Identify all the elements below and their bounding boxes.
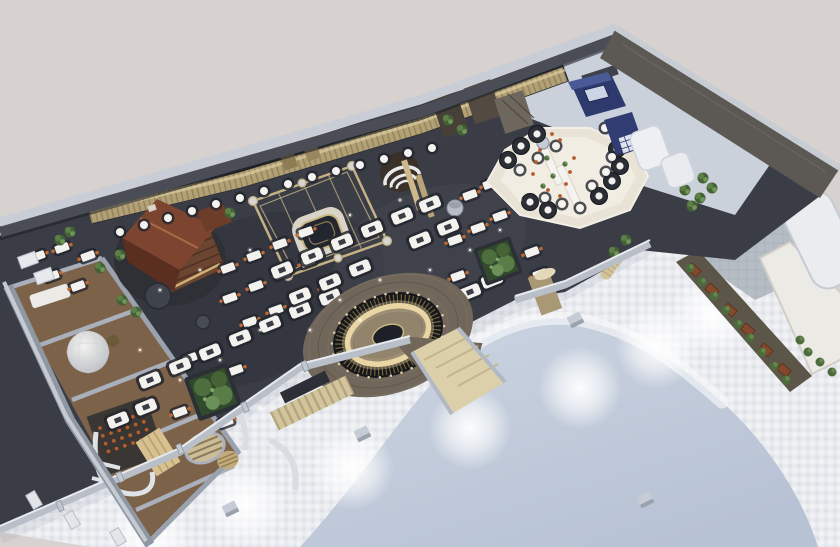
round-table: [586, 180, 599, 193]
indoor-plant: [95, 263, 106, 274]
terrace-shrub: [722, 306, 731, 315]
terrace-shrub: [828, 368, 837, 377]
ceiling-light: [157, 287, 162, 292]
ceiling-light: [257, 327, 262, 332]
chair: [531, 172, 535, 176]
ceiling-light: [307, 327, 312, 332]
ceiling-light: [337, 297, 342, 302]
round-table: [600, 166, 613, 179]
terrace-shrub: [770, 362, 779, 371]
ceiling-light: [137, 347, 142, 352]
waiting-seat: [145, 428, 149, 432]
waiting-seat: [107, 450, 111, 454]
terrace-shrub: [804, 348, 813, 357]
waiting-seat: [142, 420, 146, 424]
waiting-seat: [123, 444, 127, 448]
waiting-seat: [126, 426, 130, 430]
round-booth: [529, 126, 546, 143]
ceiling-light: [517, 197, 522, 202]
indoor-plant: [457, 125, 468, 136]
plaza-light-pool: [538, 346, 622, 430]
table-greenery: [544, 155, 549, 160]
gray-cylinder-column: [447, 200, 463, 216]
round-table: [574, 202, 587, 215]
terrace-shrub: [746, 334, 755, 343]
chair: [568, 170, 572, 174]
round-booth: [513, 138, 530, 155]
waiting-seat: [120, 436, 124, 440]
ceiling-light: [197, 267, 202, 272]
round-table: [556, 198, 569, 211]
round-booth: [540, 202, 557, 219]
terrace-shrub: [686, 264, 695, 273]
indoor-plant: [65, 227, 76, 238]
indoor-plant: [443, 115, 454, 126]
indoor-plant: [225, 208, 236, 219]
waiting-seat: [101, 434, 105, 438]
terrace-shrub: [758, 348, 767, 357]
waiting-seat: [137, 431, 141, 435]
chair: [572, 156, 576, 160]
terrace-shrub: [816, 358, 825, 367]
plaza-light-pool: [310, 426, 394, 510]
chair: [550, 132, 554, 136]
chair: [558, 194, 562, 198]
ceiling-light: [397, 197, 402, 202]
chair: [546, 188, 550, 192]
ceiling-light: [247, 247, 252, 252]
pavilion-turret-small: [196, 315, 210, 329]
floorplan-svg: [0, 0, 840, 547]
table-greenery: [540, 183, 545, 188]
terrace-shrub: [734, 320, 743, 329]
table-greenery: [550, 173, 555, 178]
chair: [534, 160, 538, 164]
screenshot-restaurant-floorplan-render: [0, 0, 840, 547]
waiting-seat: [131, 441, 135, 445]
round-booth: [522, 194, 539, 211]
ceiling-light: [177, 377, 182, 382]
ceiling-light: [357, 317, 362, 322]
terrace-shrub: [710, 292, 719, 301]
ceiling-light: [297, 232, 302, 237]
dome-booth: [67, 331, 109, 373]
indoor-plant: [687, 201, 698, 212]
pavilion-turret: [145, 283, 171, 309]
ceiling-light: [427, 267, 432, 272]
indoor-plant: [707, 183, 718, 194]
waiting-seat: [104, 442, 108, 446]
waiting-seat: [98, 426, 102, 430]
round-booth: [500, 152, 517, 169]
indoor-plant: [131, 307, 142, 318]
chair: [558, 138, 562, 142]
indoor-plant: [698, 173, 709, 184]
ceiling-light: [467, 247, 472, 252]
round-table: [532, 152, 545, 165]
terrace-shrub: [796, 336, 805, 345]
indoor-plant: [695, 193, 706, 204]
table-greenery: [562, 161, 567, 166]
terrace-shrub: [782, 376, 791, 385]
waiting-seat: [112, 439, 116, 443]
chair: [538, 148, 542, 152]
ceiling-light: [377, 277, 382, 282]
ceiling-light: [217, 357, 222, 362]
ceiling-light: [497, 227, 502, 232]
indoor-plant: [117, 295, 128, 306]
indoor-plant: [55, 235, 66, 246]
waiting-seat: [115, 447, 119, 451]
round-table: [514, 164, 527, 177]
indoor-plant: [621, 235, 632, 246]
waiting-seat: [134, 423, 138, 427]
round-table: [539, 192, 552, 205]
ceiling-light: [347, 212, 352, 217]
waiting-seat: [109, 431, 113, 435]
facade-downlight: [256, 404, 264, 412]
terrace-shrub: [698, 278, 707, 287]
chair: [564, 182, 568, 186]
dry-tree: [107, 335, 119, 347]
waiting-seat: [128, 433, 132, 437]
indoor-plant: [115, 250, 126, 261]
